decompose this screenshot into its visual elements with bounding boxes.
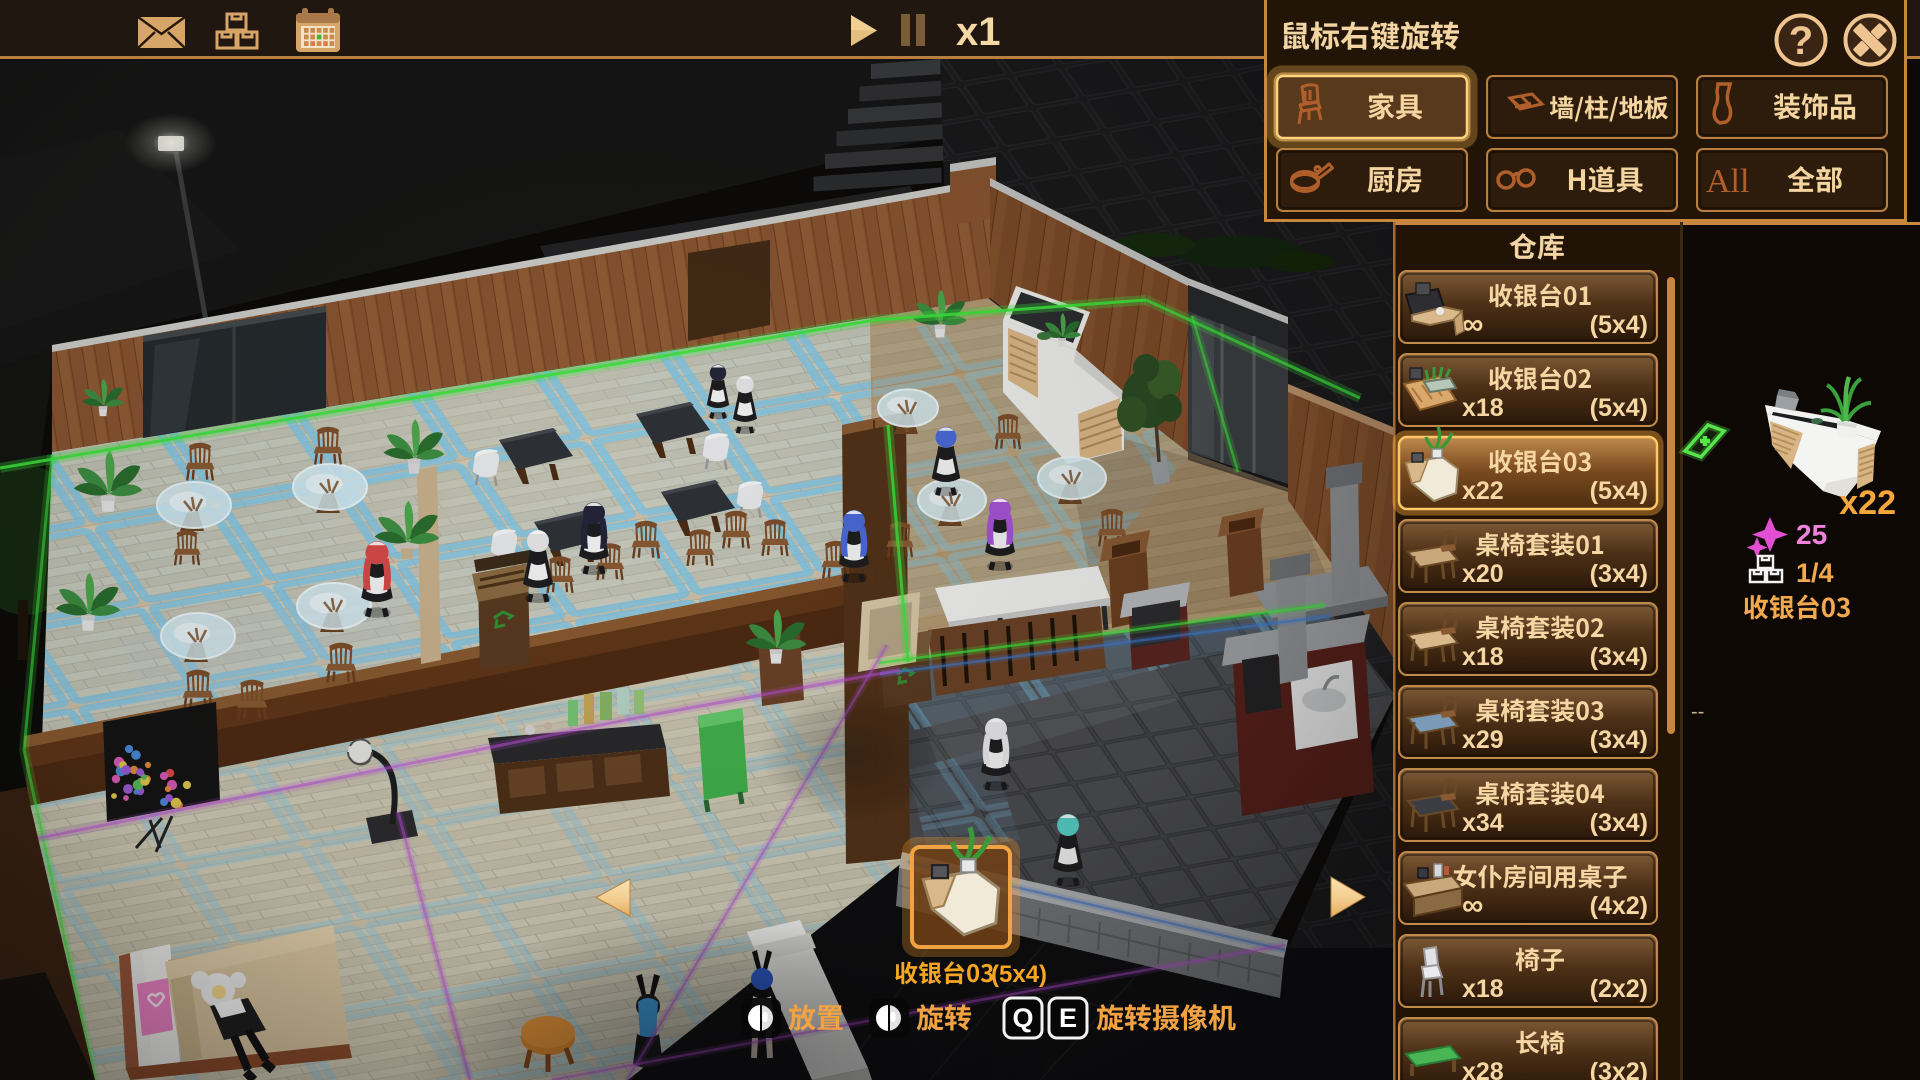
svg-text:(2x2): (2x2)	[1590, 975, 1648, 1003]
svg-text:x18: x18	[1462, 394, 1504, 422]
svg-text:(5x4): (5x4)	[1590, 311, 1648, 339]
svg-text:x29: x29	[1462, 726, 1504, 754]
svg-text:(3x4): (3x4)	[1590, 560, 1648, 588]
svg-text:(3x4): (3x4)	[1590, 726, 1648, 754]
svg-text:E: E	[1059, 1003, 1077, 1033]
svg-text:x28: x28	[1462, 1058, 1504, 1080]
svg-text:∞: ∞	[1462, 889, 1483, 922]
svg-text:?: ?	[1789, 19, 1813, 63]
svg-text:25: 25	[1796, 519, 1827, 550]
svg-text:(5x4): (5x4)	[991, 961, 1047, 988]
svg-text:(5x4): (5x4)	[1590, 477, 1648, 505]
svg-text:--: --	[1691, 701, 1704, 723]
svg-text:x22: x22	[1839, 484, 1896, 522]
svg-text:x1: x1	[956, 10, 1001, 54]
svg-text:(4x2): (4x2)	[1590, 892, 1648, 920]
svg-text:(3x2): (3x2)	[1590, 1058, 1648, 1080]
svg-text:x22: x22	[1462, 477, 1504, 505]
svg-text:(3x4): (3x4)	[1590, 809, 1648, 837]
svg-text:x34: x34	[1462, 809, 1504, 837]
svg-text:∞: ∞	[1462, 308, 1483, 341]
svg-text:1/4: 1/4	[1796, 558, 1834, 588]
svg-text:(3x4): (3x4)	[1590, 643, 1648, 671]
svg-text:x20: x20	[1462, 560, 1504, 588]
svg-text:x18: x18	[1462, 975, 1504, 1003]
svg-text:x18: x18	[1462, 643, 1504, 671]
svg-text:(5x4): (5x4)	[1590, 394, 1648, 422]
svg-text:All: All	[1706, 163, 1749, 200]
svg-text:Q: Q	[1012, 1003, 1033, 1033]
